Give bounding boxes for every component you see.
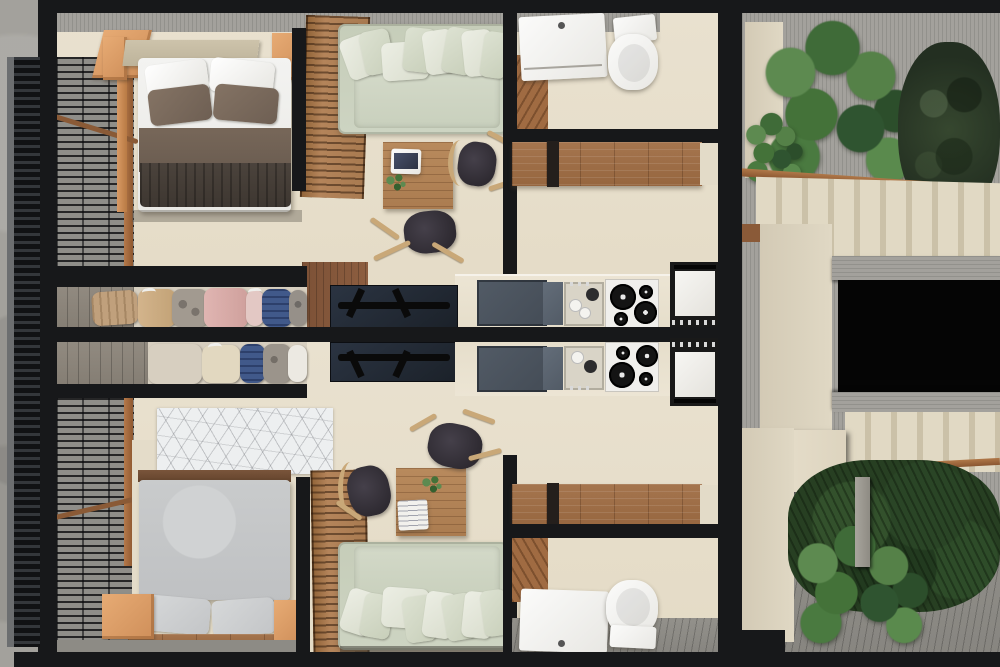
- lower-bedroom-living-wall: [296, 477, 310, 652]
- lower-corridor-wall-band: [503, 524, 737, 538]
- upper-kitchen-sink-half: [543, 282, 563, 325]
- upper-bed-dark-throw: [140, 163, 291, 207]
- upper-burner-small: [614, 312, 628, 326]
- void-edge-beam-top: [832, 256, 1000, 280]
- lower-sofa-seat: [354, 546, 500, 598]
- upper-table-plant: [382, 170, 410, 196]
- lower-corridor-bench-divider: [547, 483, 559, 529]
- closet-beige-coat: [148, 344, 202, 384]
- right-party-wall: [718, 0, 742, 667]
- left-louver-screen: [14, 57, 40, 647]
- upper-kitchen-sink: [477, 280, 547, 326]
- lower-kitchen-sink: [477, 346, 547, 392]
- floor-plan-render: [0, 0, 1000, 667]
- upper-bed-brown-pillow-left: [147, 83, 213, 126]
- hanger: [248, 288, 263, 300]
- upper-corridor-end-floor: [700, 143, 718, 185]
- lower-oven-door: [675, 352, 715, 397]
- upper-corridor-bench-divider: [547, 141, 559, 187]
- lower-bed-pillow-right: [211, 597, 276, 637]
- lower-nightstand-left: [102, 594, 154, 639]
- closet-gray-shirt: [289, 290, 307, 326]
- hanger: [142, 288, 157, 300]
- lower-kitchen-sink-half: [543, 347, 563, 390]
- closet-patterned-shirt: [172, 289, 208, 327]
- lower-toilet-base: [609, 625, 656, 649]
- upper-bed-brown-pillow-right: [213, 83, 280, 124]
- lower-corridor-end-floor: [700, 485, 718, 527]
- upper-closet-wall-band: [38, 266, 307, 287]
- upper-vanity-faucet: [558, 22, 565, 29]
- upper-burner-large: [610, 284, 636, 310]
- closet-pink-blouse: [204, 288, 248, 328]
- upper-chair-right-frame: [448, 140, 473, 186]
- closet-duffel-bag: [91, 289, 139, 326]
- lower-closet-floor: [56, 342, 150, 384]
- upper-window-frame-strip: [117, 62, 127, 212]
- lower-oven-controls: [672, 342, 718, 347]
- upper-bed-foot-shadow: [132, 210, 302, 222]
- upper-sofa-seat: [354, 72, 500, 128]
- top-exterior-wall: [38, 0, 1000, 13]
- lower-bedroom-floor-strip: [56, 640, 306, 652]
- upper-toilet-seat: [618, 44, 650, 82]
- closet-denim-stack: [240, 344, 265, 383]
- bottom-exterior-wall: [14, 652, 1000, 667]
- lower-pan: [584, 360, 597, 373]
- upper-oven-handle: [674, 265, 716, 269]
- lower-burner-small: [639, 372, 653, 386]
- lower-vanity-faucet: [558, 640, 565, 647]
- upper-burner-small: [639, 285, 653, 299]
- lower-bed-pillow-left: [145, 594, 212, 635]
- lower-bed-duvet: [139, 480, 290, 600]
- upper-bedroom-living-wall: [292, 28, 306, 191]
- left-exterior-wall: [38, 0, 57, 667]
- upper-plate: [570, 300, 581, 311]
- upper-oven-controls: [672, 320, 718, 325]
- upper-corridor-bench: [512, 142, 702, 186]
- closet-denim-stack: [262, 289, 292, 327]
- lower-closet-wall-band: [38, 384, 307, 398]
- upper-corridor-wall-band: [503, 129, 737, 143]
- closet-patterned-shirt: [263, 344, 291, 383]
- concrete-post: [855, 477, 870, 567]
- lower-oven-handle: [674, 399, 716, 403]
- closet-white-shirt: [288, 345, 307, 382]
- hanger: [208, 343, 223, 355]
- upper-laptop-screen: [394, 153, 418, 169]
- lower-burner-small: [616, 346, 630, 360]
- lower-burner-large: [636, 345, 658, 367]
- upper-burner-large: [634, 301, 657, 324]
- lower-book: [397, 499, 429, 531]
- left-louver-screen-edge: [7, 57, 14, 647]
- lower-corridor-bench: [512, 484, 702, 528]
- central-party-wall: [38, 327, 742, 342]
- lower-hob-knobs: [570, 386, 594, 390]
- lower-burner-large: [609, 362, 635, 388]
- upper-hob-knobs: [570, 282, 594, 286]
- upper-oven-door: [675, 271, 715, 316]
- upper-pan: [586, 288, 599, 301]
- upper-plate: [580, 308, 590, 318]
- lower-toilet-seat: [616, 588, 650, 626]
- lower-table-plant: [418, 472, 446, 498]
- lower-plate: [572, 352, 583, 363]
- void-edge-beam-bottom: [832, 392, 1000, 412]
- floor-void-opening: [838, 280, 1000, 392]
- courtyard-wood-piece: [742, 224, 760, 242]
- geometric-rug: [157, 408, 333, 474]
